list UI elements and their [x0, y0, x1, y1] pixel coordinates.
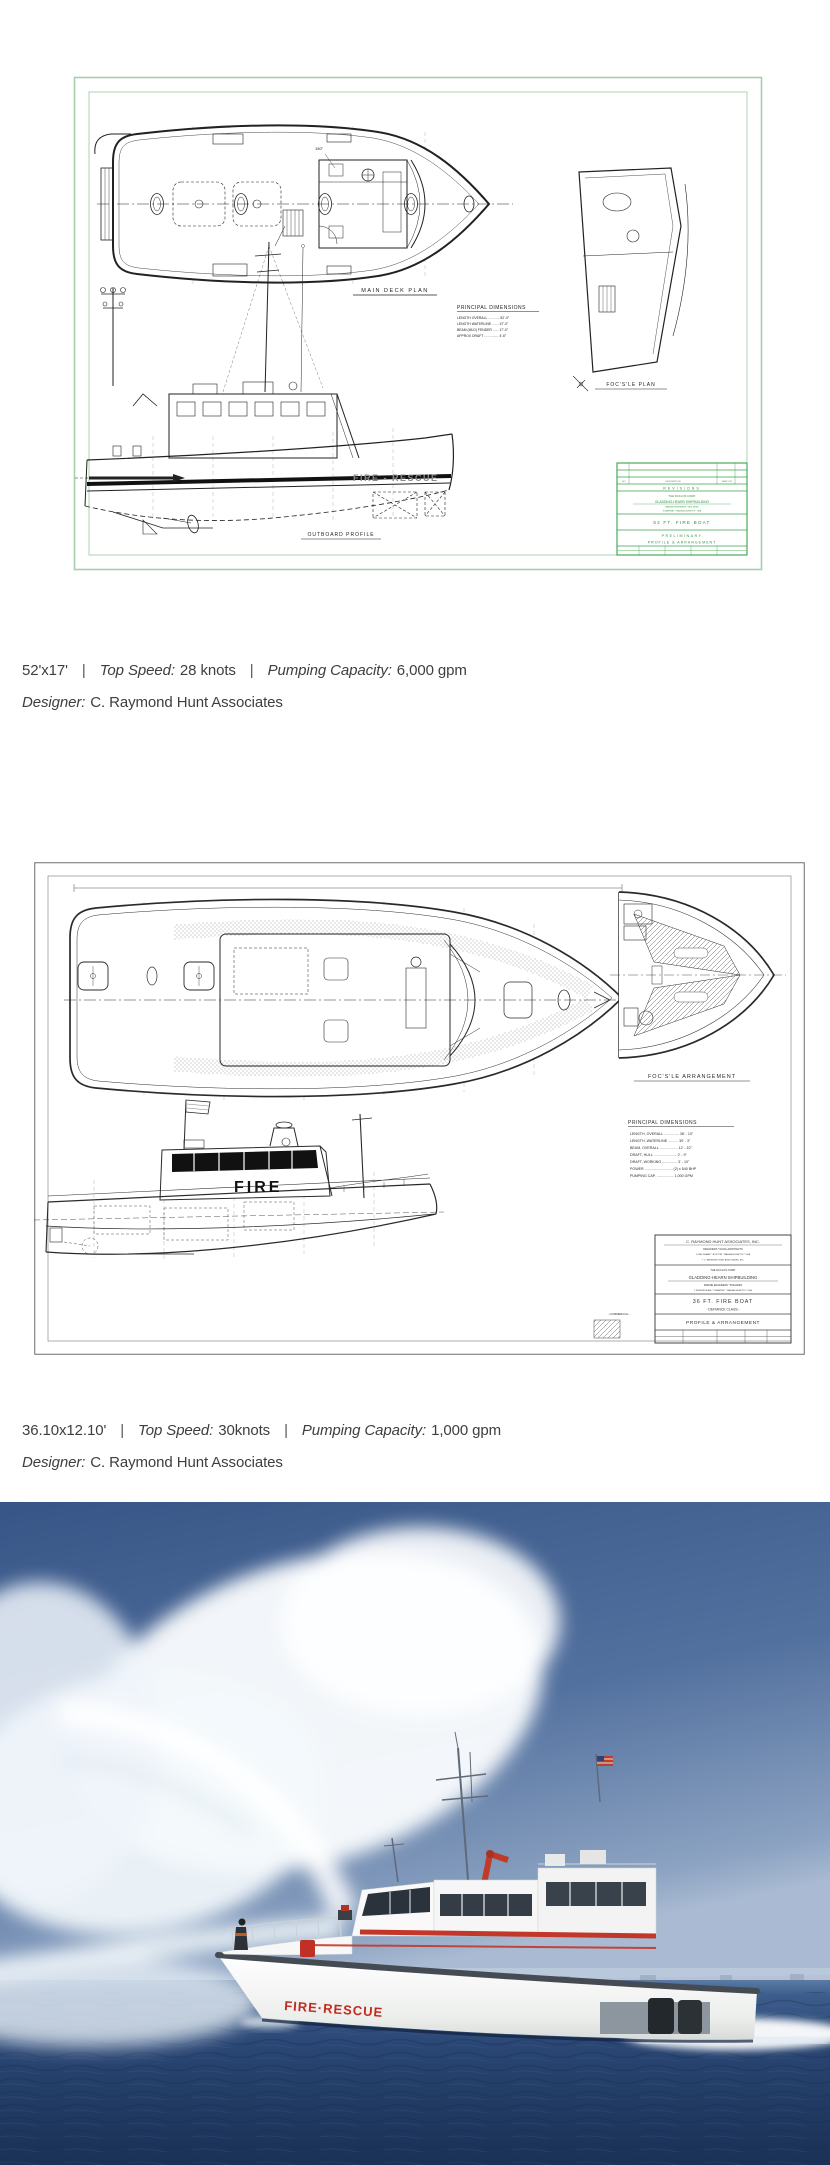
dim-line: BEAM, OVERALL .................. 12' - 1…: [630, 1146, 692, 1150]
dim-line: LENGTH, WATERLINE .......... 30' - 3": [630, 1139, 691, 1143]
company-line: THE DUCLOS CORP.: [668, 494, 696, 498]
company-line: SOMERSET * MASSACHUSETTS * USA: [663, 510, 702, 513]
dim-150-label: 150": [315, 146, 324, 151]
boat-dimensions: 36.10x12.10': [22, 1422, 106, 1439]
drawing-title: PROFILE & ARRANGEMENT: [686, 1320, 760, 1326]
commercial-label: - COMMERCIAL -: [608, 1312, 630, 1316]
separator: |: [250, 662, 254, 679]
builder-company: GLADDING-HEARN SHIPBUILDING: [689, 1275, 758, 1280]
caption-36ft-designer: Designer:C. Raymond Hunt Associates: [22, 1454, 501, 1471]
dim-line: DRAFT, WORKING ............... 3' - 10": [630, 1160, 690, 1164]
boat-title: 36 FT. FIRE BOAT: [693, 1299, 754, 1305]
dim-line: DRAFT, HULL ....................... 2' -…: [630, 1153, 687, 1157]
us-flag: [597, 1756, 613, 1766]
rev-date: DATE / BY: [722, 480, 733, 483]
drawing-status: PRELIMINARY: [662, 534, 703, 538]
profile-hull-text: FIRE - RESCUE: [353, 473, 439, 483]
caption-36ft-specs: 36.10x12.10' | Top Speed:30knots | Pumpi…: [22, 1422, 501, 1439]
dim-line: PUMPING CAP. ................. 1,000 GPM: [630, 1174, 693, 1178]
company-line: GLADDING-HEARN SHIPBUILDING: [655, 500, 709, 504]
top-speed-label: Top Speed:: [138, 1422, 213, 1439]
principal-dimensions-title: PRINCIPAL DIMENSIONS: [628, 1120, 697, 1126]
blueprint-52ft-fireboat: 150" MAIN DECK PLAN PRINCIPAL DIMENSIONS…: [73, 76, 763, 571]
boat-class: - DEFIANCE CLASS -: [706, 1308, 739, 1312]
blueprint-36ft-drawing: FOC'S'LE ARRANGEMENT PRINCIPAL DIMENSION…: [34, 862, 805, 1355]
builder-line: 1 RIVERSIDE AVE * SOMERSET * MASSACHUSET…: [694, 1289, 752, 1292]
separator: |: [120, 1422, 124, 1439]
caption-36ft: 36.10x12.10' | Top Speed:30knots | Pumpi…: [22, 1422, 501, 1471]
mid-cabin: [434, 1880, 538, 1936]
dim-line: APPROX DRAFT ............... 4'-6": [457, 334, 507, 338]
dim-line: LENGTH, OVERALL ............... 36' - 10…: [630, 1132, 694, 1136]
page: 150" MAIN DECK PLAN PRINCIPAL DIMENSIONS…: [0, 0, 830, 2165]
blueprint-52ft-drawing: 150" MAIN DECK PLAN PRINCIPAL DIMENSIONS…: [73, 76, 763, 571]
caption-52ft-designer: Designer:C. Raymond Hunt Associates: [22, 694, 467, 711]
designer-line: © C. RAYMOND HUNT ASSOCIATES, INC.: [702, 1259, 745, 1262]
designer-value: C. Raymond Hunt Associates: [90, 1454, 283, 1471]
drawing-title: PROFILE & ARRANGEMENT: [648, 541, 717, 545]
outboard-profile-label: OUTBOARD PROFILE: [307, 532, 374, 538]
pumping-capacity-label: Pumping Capacity:: [268, 662, 392, 679]
company-line: MARINE ENGINEERS * BUILDERS: [665, 506, 699, 509]
top-speed-value: 30knots: [218, 1422, 270, 1439]
caption-52ft-specs: 52'x17' | Top Speed:28 knots | Pumping C…: [22, 662, 467, 679]
designer-label: Designer:: [22, 694, 85, 711]
builder-line: MARINE ENGINEERS * BUILDERS: [704, 1284, 743, 1287]
dim-line: POWER ............................ (2) x…: [630, 1167, 697, 1171]
dim-line: BEAM (MLD) FENDER ...... 17'-0": [457, 328, 509, 332]
pumping-capacity-value: 1,000 gpm: [431, 1422, 501, 1439]
designer-line: LONG WHARF * BOSTON * MASSACHUSETTS * US…: [696, 1253, 751, 1256]
designer-label: Designer:: [22, 1454, 85, 1471]
separator: |: [284, 1422, 288, 1439]
top-speed-value: 28 knots: [180, 662, 236, 679]
principal-dimensions-title: PRINCIPAL DIMENSIONS: [457, 305, 526, 311]
rev-no: NO.: [622, 481, 626, 483]
rev-desc: DESCRIPTION: [666, 481, 681, 483]
pumping-capacity-label: Pumping Capacity:: [302, 1422, 426, 1439]
designer-value: C. Raymond Hunt Associates: [90, 694, 283, 711]
blueprint-36ft-fireboat: FOC'S'LE ARRANGEMENT PRINCIPAL DIMENSION…: [34, 862, 805, 1355]
designer-company: C. RAYMOND HUNT ASSOCIATES, INC.: [686, 1239, 760, 1244]
photo-fireboat-spraying: FIRE·RESCUE: [0, 1502, 830, 2165]
focsle-plan-label: FOC'S'LE PLAN: [606, 382, 655, 388]
dim-line: LENGTH WATERLINE ....... 47'-0": [457, 322, 509, 326]
designer-line: DESIGNERS * NAVAL ARCHITECTS: [703, 1248, 743, 1251]
separator: |: [82, 662, 86, 679]
pumping-capacity-value: 6,000 gpm: [397, 662, 467, 679]
revisions-label: REVISIONS: [663, 487, 701, 491]
builder-line: THE DUCLOS CORP.: [710, 1268, 736, 1272]
profile-cabin-text: FIRE: [234, 1179, 282, 1196]
deck-plan-label: MAIN DECK PLAN: [361, 288, 428, 294]
stern-platform: [600, 1998, 710, 2034]
boat-title: 52 FT. FIRE BOAT: [653, 520, 710, 525]
top-speed-label: Top Speed:: [100, 662, 175, 679]
focsle-arrangement-label: FOC'S'LE ARRANGEMENT: [648, 1074, 736, 1080]
caption-52ft: 52'x17' | Top Speed:28 knots | Pumping C…: [22, 662, 467, 711]
boat-dimensions: 52'x17': [22, 662, 68, 679]
fd-logo: [300, 1940, 315, 1957]
pilothouse: [352, 1882, 434, 1936]
photo-fireboat-svg: FIRE·RESCUE: [0, 1502, 830, 2165]
dim-line: LENGTH OVERALL ............ 52'-0": [457, 316, 510, 320]
